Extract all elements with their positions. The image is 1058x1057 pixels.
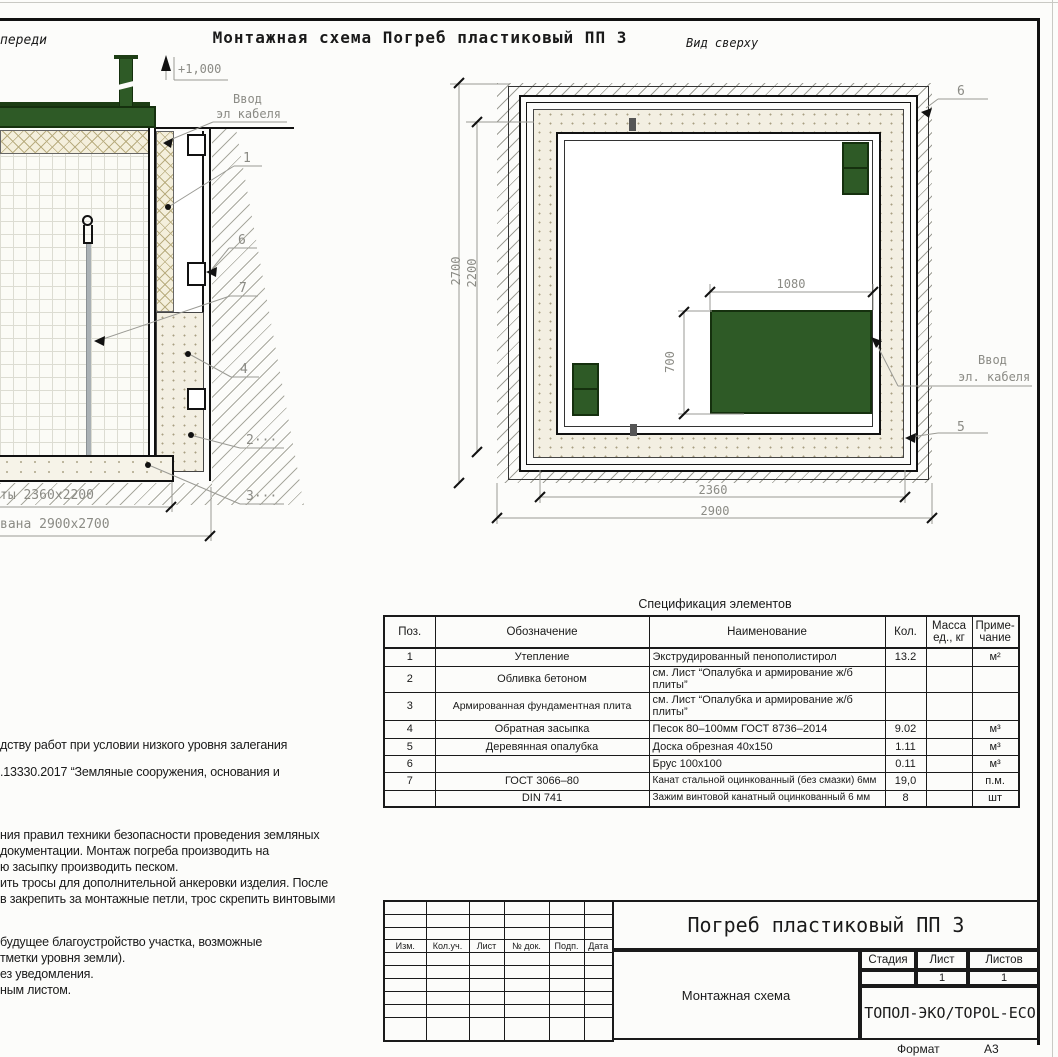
front-callout-1: 1 <box>243 151 251 166</box>
front-vent-pipe-cap <box>114 55 138 59</box>
sheets-value-cell: 1 <box>968 970 1040 986</box>
front-foundation-slab <box>0 455 174 482</box>
top-vent-block-topright-upper <box>842 142 869 169</box>
company-name: ТОПОЛ-ЭКО/TOPOL-ECO <box>864 1004 1036 1022</box>
frame-right-line <box>1037 18 1040 1045</box>
top-cable-entry-label-1: Ввод <box>978 353 1007 367</box>
note-line-10: ез уведомления. <box>0 967 94 981</box>
page-title: Монтажная схема Погреб пластиковый ПП 3 <box>160 28 680 47</box>
top-dim-2900: 2900 <box>690 504 740 518</box>
top-callout-6: 6 <box>957 84 965 99</box>
spec-header-name: Наименование <box>649 616 885 648</box>
spec-row-1: 1Утепление Экструдированный пенополистир… <box>384 648 1019 666</box>
front-brus-block-2 <box>187 262 206 286</box>
front-cable-entry-label-2: эл кабеля <box>216 107 281 121</box>
doc-type: Монтажная схема <box>682 988 790 1003</box>
sheet-edge-right <box>1052 0 1053 1057</box>
front-cellar-interior <box>0 154 148 456</box>
sheet-label: Лист <box>930 954 955 966</box>
spec-row-2: 2Обливка бетоном см. Лист “Опалубка и ар… <box>384 666 1019 692</box>
front-insulation-top <box>0 130 150 154</box>
front-lid <box>0 106 156 128</box>
front-pit-dim-label: вана 2900х2700 <box>0 517 110 532</box>
top-view-label: Вид сверху <box>686 36 758 50</box>
top-vent-block-topright-lower <box>842 167 869 195</box>
top-dim-1080: 1080 <box>766 277 816 291</box>
sheets-value: 1 <box>1001 972 1007 984</box>
top-formwork-joint-bottom <box>630 424 637 436</box>
title-block-revision-table: Изм.Кол.уч. Лист№ док. Подп.Дата <box>383 900 614 1042</box>
spec-table-title: Спецификация элементов <box>590 597 840 611</box>
note-line-1: дству работ при условии низкого уровня з… <box>0 738 287 752</box>
top-dim-2700: 2700 <box>449 249 463 293</box>
spec-row-7: 7ГОСТ 3066–80 Канат стальной оцинкованны… <box>384 772 1019 790</box>
stage-label-cell: Стадия <box>860 950 916 970</box>
frame-top-line <box>0 18 1040 21</box>
front-rope-shackle <box>83 225 93 244</box>
front-callout-7: 7 <box>239 281 247 296</box>
sheets-label-cell: Листов <box>968 950 1040 970</box>
front-ground-hatch-side <box>212 128 304 505</box>
spec-header-mark: Обозначение <box>435 616 649 648</box>
front-view-label: переди <box>0 33 47 48</box>
stage-value-cell <box>860 970 916 986</box>
note-line-8: будущее благоустройство участка, возможн… <box>0 935 262 949</box>
title-block-project-title-cell: Погреб пластиковый ПП 3 <box>612 900 1040 950</box>
front-cable-entry-label-1: Ввод <box>233 92 262 106</box>
top-callout-5: 5 <box>957 420 965 435</box>
elevation-arrow-icon <box>161 55 171 71</box>
top-vent-block-bottomleft-upper <box>572 363 599 390</box>
note-line-7: в закрепить за монтажные петли, трос скр… <box>0 892 335 906</box>
front-callout-2: 2··· <box>246 433 277 448</box>
drawing-sheet: переди Монтажная схема Погреб пластиковы… <box>0 0 1058 1057</box>
elevation-mark-label: +1,000 <box>178 62 221 76</box>
front-insulation-side <box>156 131 174 312</box>
front-brus-block-1 <box>187 134 206 156</box>
spec-row-8: DIN 741 Зажим винтовой канатный оцинкова… <box>384 790 1019 807</box>
stage-label: Стадия <box>868 954 907 966</box>
spec-row-4: 4Обратная засыпка Песок 80–100мм ГОСТ 87… <box>384 720 1019 738</box>
top-cable-entry-label-2: эл. кабеля <box>958 370 1030 384</box>
company-cell: ТОПОЛ-ЭКО/TOPOL-ECO <box>860 986 1040 1040</box>
top-dim-700: 700 <box>663 340 677 384</box>
spec-row-6: 6 Брус 100х1000.11 м³ <box>384 755 1019 772</box>
note-line-4: документации. Монтаж погреба производить… <box>0 844 269 858</box>
front-anchor-rope <box>86 242 91 455</box>
spec-table: Поз. Обозначение Наименование Кол. Масса… <box>383 615 1020 808</box>
front-ground-line <box>156 127 294 129</box>
front-callout-4: 4 <box>240 362 248 377</box>
top-formwork-joint-top <box>629 118 636 131</box>
format-label: Формат <box>897 1042 940 1056</box>
note-line-6: ить тросы для дополнительной анкеровки и… <box>0 876 328 890</box>
spec-row-3: 3Армированная фундаментная плита см. Лис… <box>384 692 1019 720</box>
note-line-5: ю засыпку производить песком. <box>0 860 178 874</box>
revision-header-row: Изм.Кол.уч. Лист№ док. Подп.Дата <box>384 939 613 952</box>
top-lid-panel <box>710 310 872 414</box>
sheet-value-cell: 1 <box>916 970 968 986</box>
top-dim-2200: 2200 <box>465 251 479 295</box>
front-plate-dim-label: ты 2360х2200 <box>0 488 94 503</box>
spec-row-5: 5Деревянная опалубка Доска обрезная 40х1… <box>384 738 1019 755</box>
note-line-11: ным листом. <box>0 983 71 997</box>
front-formwork-edge <box>209 128 211 481</box>
top-vent-block-bottomleft-lower <box>572 388 599 416</box>
sheet-value: 1 <box>939 972 945 984</box>
sheet-edge-top <box>0 2 1058 3</box>
sheets-label: Листов <box>985 954 1022 966</box>
front-callout-3: 3··· <box>246 489 277 504</box>
spec-header-note: Приме-чание <box>972 616 1019 648</box>
spec-header-qty: Кол. <box>885 616 926 648</box>
top-vent-block-topright <box>842 142 869 195</box>
front-callout-6: 6 <box>238 233 246 248</box>
note-line-9: тметки уровня земли). <box>0 951 125 965</box>
format-value: А3 <box>984 1042 999 1056</box>
spec-header-pos: Поз. <box>384 616 435 648</box>
note-line-3: ния правил техники безопасности проведен… <box>0 828 319 842</box>
sheet-label-cell: Лист <box>916 950 968 970</box>
note-line-2: .13330.2017 “Земляные сооружения, основа… <box>0 765 280 779</box>
project-title: Погреб пластиковый ПП 3 <box>688 913 965 937</box>
spec-header-mass: Массаед., кг <box>926 616 972 648</box>
top-dim-2360: 2360 <box>688 483 738 497</box>
front-wall-right <box>148 128 156 481</box>
title-block-doc-type-cell: Монтажная схема <box>612 950 860 1040</box>
front-brus-block-3 <box>187 388 206 410</box>
top-vent-block-bottomleft <box>572 363 599 416</box>
